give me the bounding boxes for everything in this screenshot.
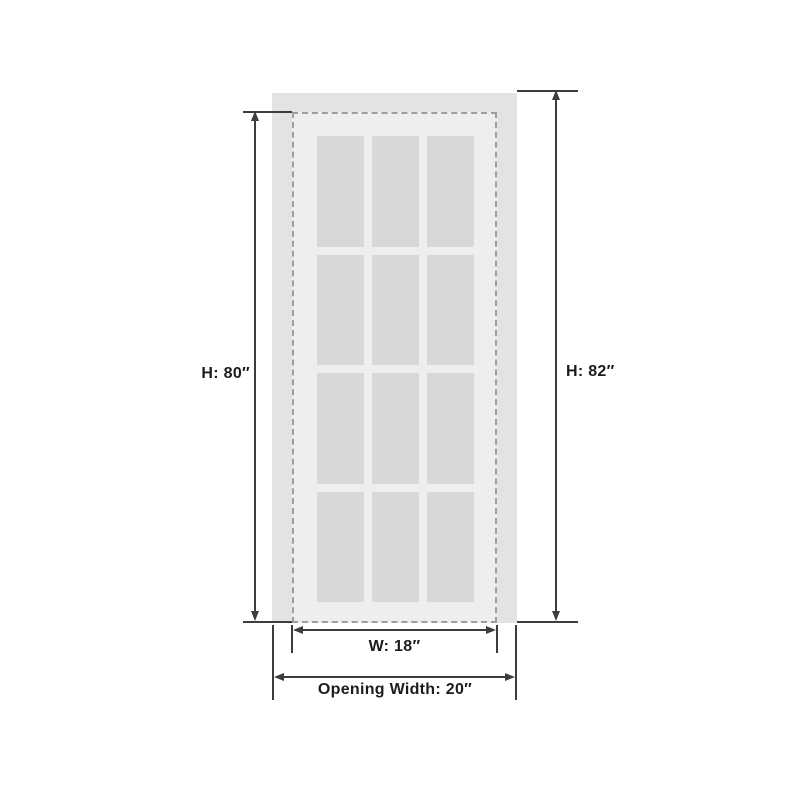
arrowhead-right-icon (486, 626, 496, 634)
glass-pane (372, 136, 419, 247)
opening-width-label: Opening Width: 20″ (245, 680, 545, 700)
glass-pane (427, 255, 474, 366)
door-height-extension-bottom (243, 621, 292, 623)
glass-pane (427, 136, 474, 247)
glass-pane (317, 136, 364, 247)
door-dimension-diagram: H: 80″ H: 82″ W: 18″ Opening Width: 20″ (0, 0, 800, 800)
glass-pane (317, 492, 364, 603)
door-height-label: H: 80″ (201, 364, 250, 384)
opening-height-extension-bottom (517, 621, 578, 623)
opening-height-extension-top (517, 90, 578, 92)
glass-pane (372, 373, 419, 484)
door-width-dimension-line (296, 629, 492, 631)
opening-width-dimension-line (277, 676, 512, 678)
arrowhead-up-icon (552, 90, 560, 100)
arrowhead-down-icon (552, 611, 560, 621)
glass-pane (317, 373, 364, 484)
arrowhead-up-icon (251, 111, 259, 121)
door-width-label: W: 18″ (294, 637, 495, 657)
door-height-dimension-line (254, 113, 256, 619)
door-width-extension-right (496, 625, 498, 653)
glass-pane-grid (317, 136, 474, 602)
opening-height-dimension-line (555, 92, 557, 619)
glass-pane (427, 492, 474, 603)
arrowhead-left-icon (293, 626, 303, 634)
glass-pane (372, 255, 419, 366)
glass-pane (317, 255, 364, 366)
glass-pane (427, 373, 474, 484)
glass-pane (372, 492, 419, 603)
opening-height-label: H: 82″ (566, 362, 615, 382)
arrowhead-down-icon (251, 611, 259, 621)
